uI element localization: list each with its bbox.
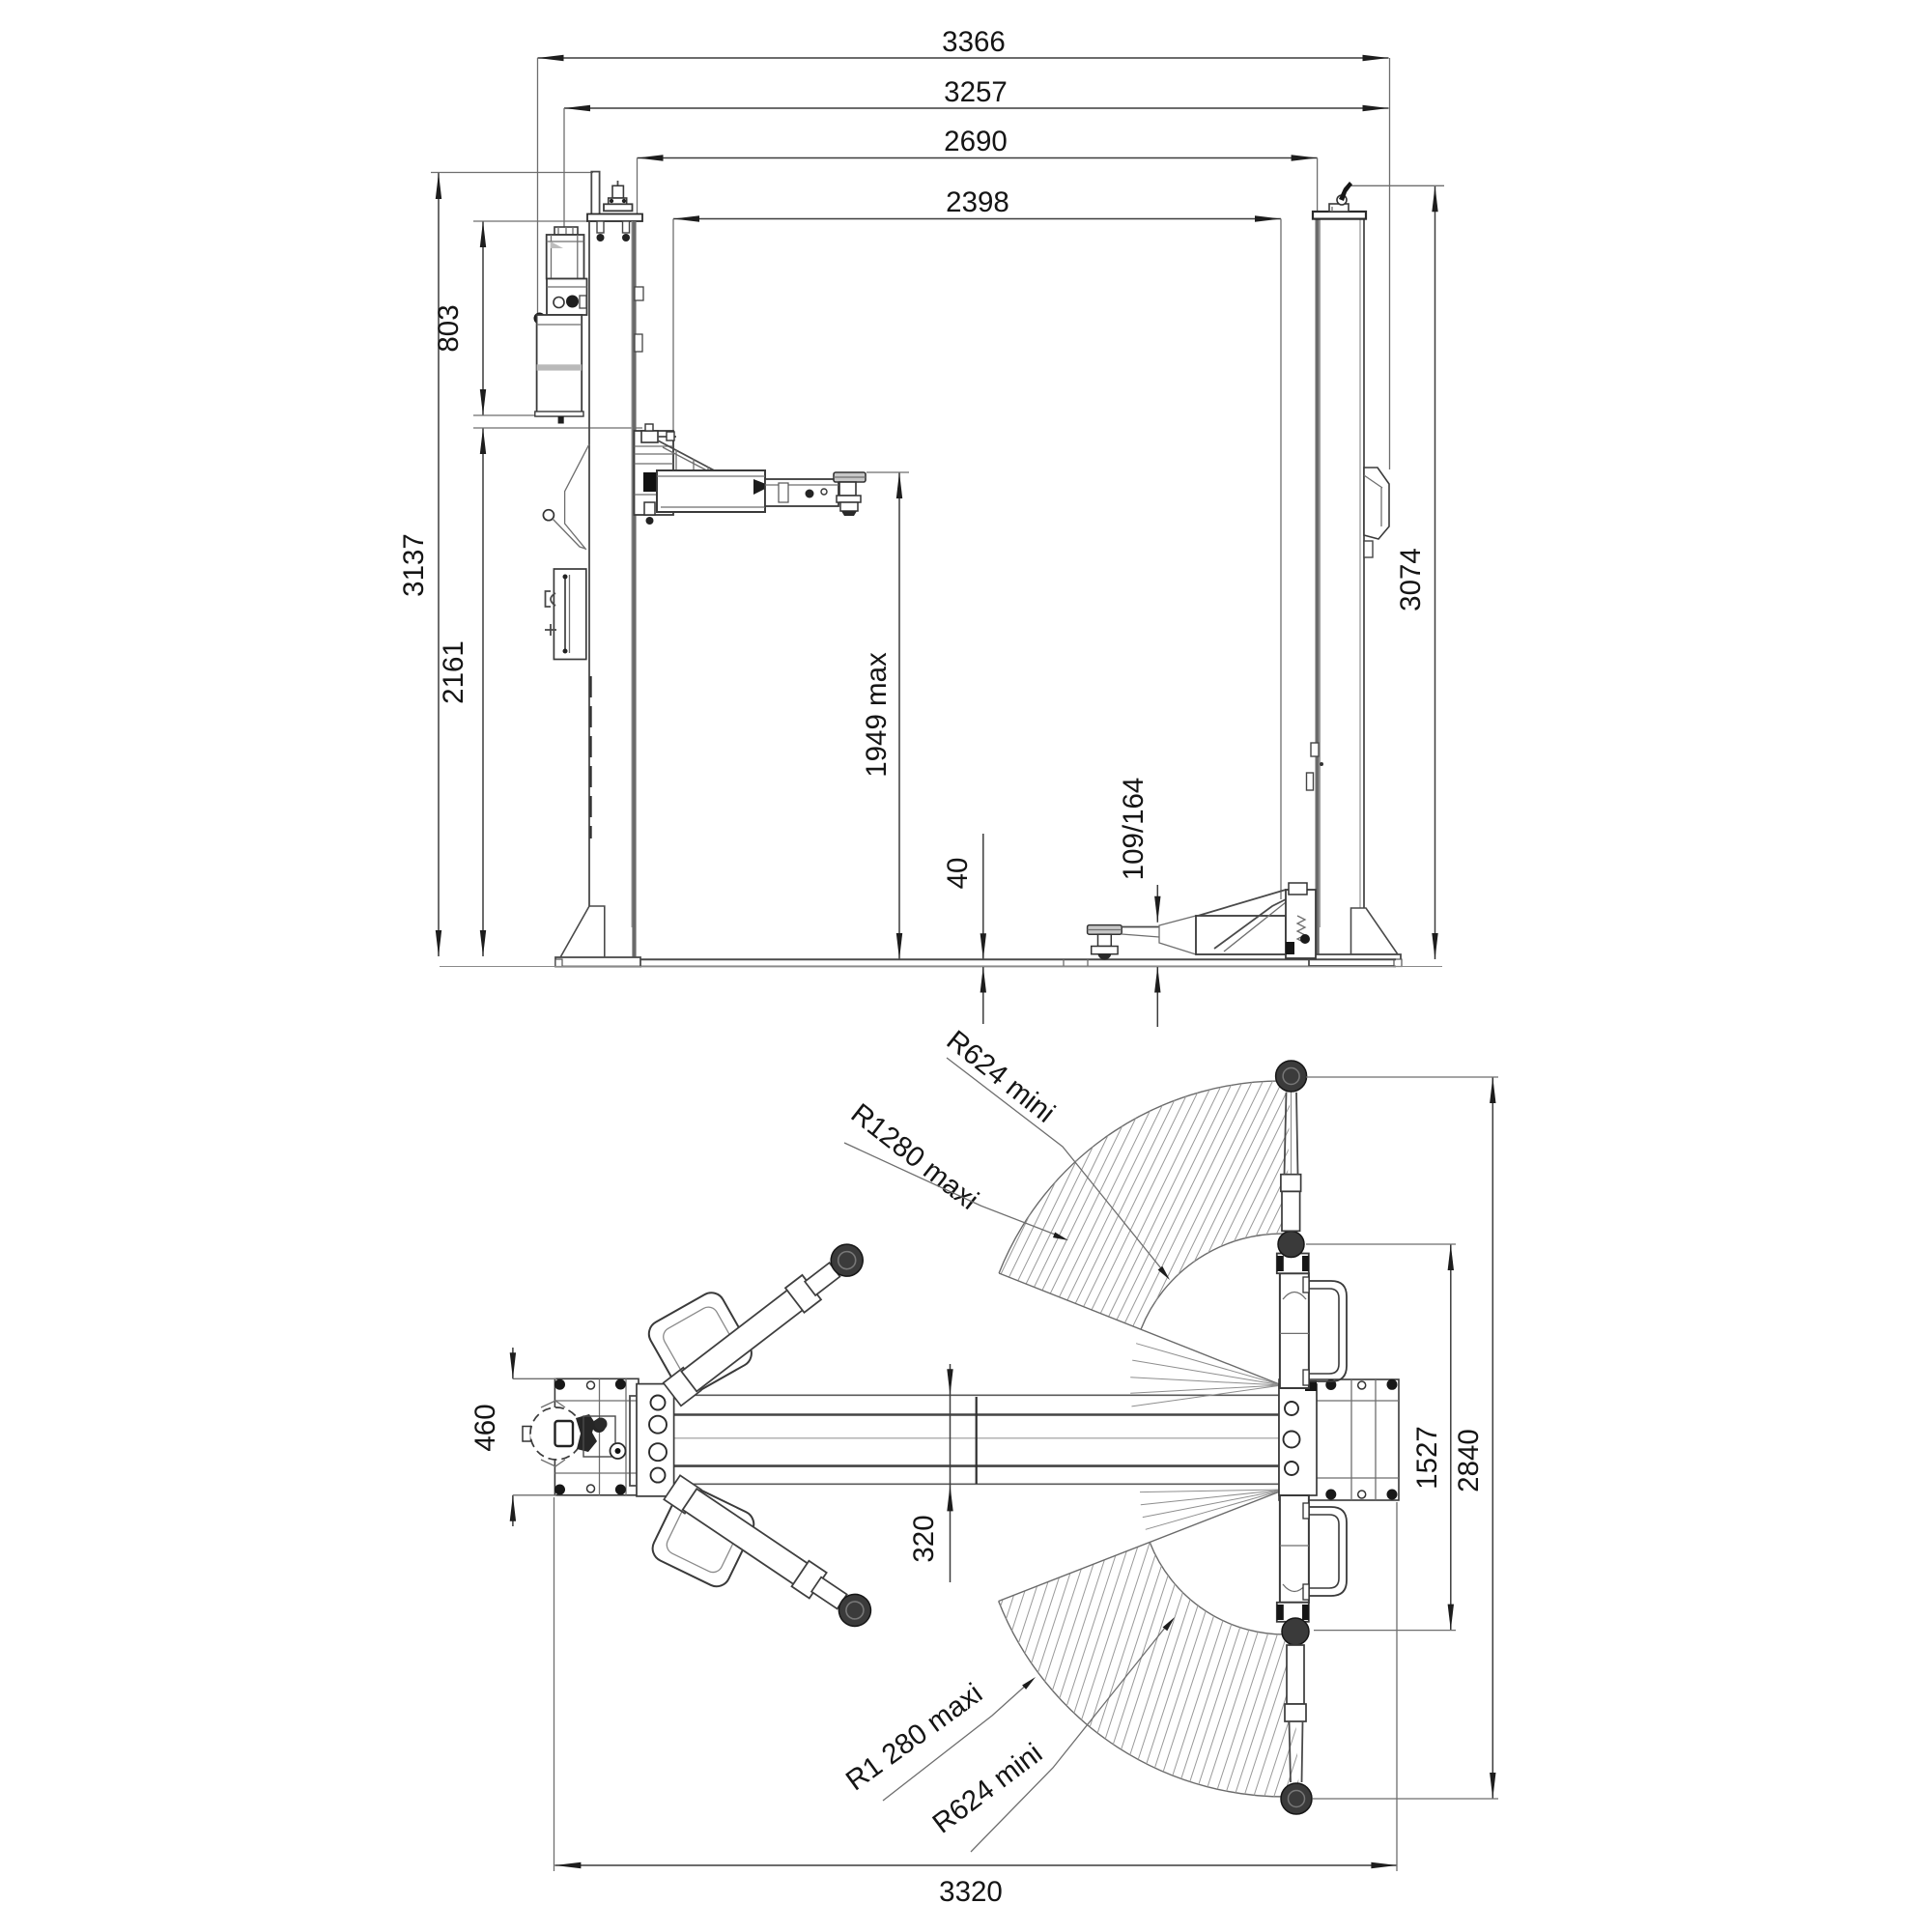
svg-text:3074: 3074 [1395,548,1427,611]
svg-text:2398: 2398 [946,186,1009,218]
svg-text:320: 320 [908,1515,940,1562]
svg-text:1527: 1527 [1411,1426,1443,1490]
svg-text:2161: 2161 [438,640,469,704]
svg-text:3257: 3257 [944,76,1008,108]
svg-text:40: 40 [942,858,974,890]
svg-text:2840: 2840 [1453,1429,1485,1492]
svg-text:2690: 2690 [944,126,1008,157]
svg-text:1949 max: 1949 max [861,652,893,778]
svg-text:109/164: 109/164 [1118,778,1150,881]
svg-text:803: 803 [433,304,465,352]
svg-text:3137: 3137 [398,533,430,597]
svg-text:3366: 3366 [942,26,1006,58]
svg-text:3320: 3320 [939,1876,1003,1908]
svg-text:460: 460 [469,1404,501,1451]
